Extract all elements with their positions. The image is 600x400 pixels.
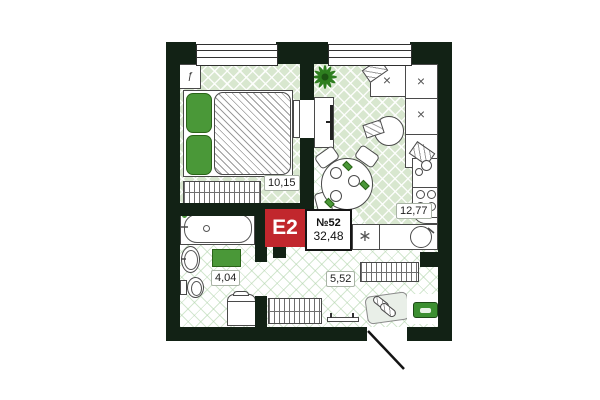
wall-bedroom-living [300,64,314,100]
washer-lid-line [228,301,255,302]
wall-right [438,42,452,341]
counter-divider [413,187,437,188]
radiator-icon: ƒ [187,71,193,82]
tv-mount [326,121,330,123]
room-area-label-hallway: 5,52 [326,271,355,287]
wall-bottom-left [166,327,367,341]
cushion-mark-icon: × [383,73,391,87]
wall-top-mid [276,42,328,64]
bedroom-door-leaf [293,100,300,138]
wall-radiator: ƒ [179,64,201,89]
stove-burner [427,190,436,199]
wardrobe-bedroom [183,181,261,204]
bathtub [180,211,255,245]
floor-plan-canvas: ƒ × × × × [0,0,600,400]
sofa-cushion-divider [406,98,437,99]
unit-type-badge: E2 [265,209,305,247]
kitchen-sink-round [410,226,432,248]
stove-burner [416,190,425,199]
cushion-mark-icon: × [417,107,425,121]
washer-lid-bump [233,291,249,296]
room-area-label-bathroom: 4,04 [211,270,240,286]
window [196,44,278,66]
bench-leg [330,313,332,318]
bath-mat [212,249,241,267]
room-area-label-bedroom: 10,15 [264,175,300,191]
doormat-bag [413,302,438,318]
unit-total-area: 32,48 [313,230,343,243]
plate [330,167,342,179]
plate [348,175,360,187]
wall-left [166,42,180,341]
sink-basin [184,250,198,270]
doormat-slot [420,308,431,313]
room-area-label-kitchen-living: 12,77 [396,203,432,219]
window [328,44,412,66]
tv [330,105,333,140]
hob-mark-icon: ∗ [358,230,371,244]
bed-pillow [186,93,212,133]
sofa-cushion-divider [406,134,437,135]
wardrobe-hall-top [360,262,419,282]
bench-leg [352,313,354,318]
bathtub-basin [184,214,252,243]
wall-bathroom [255,296,267,327]
unit-info-box: №52 32,48 [305,209,352,251]
wall-bottom-right [407,327,452,341]
bathroom-sink [181,246,200,273]
toilet-bowl-inner [191,281,202,296]
wall-kitchen-stub [420,252,438,267]
bed-pillow [186,135,212,175]
washing-machine [227,294,256,326]
bedroom-door-opening [300,100,314,138]
bathtub-drain [203,225,210,232]
counter-divider [379,225,380,249]
entrance-door-leaf [368,331,404,369]
bed-blanket [214,92,291,175]
toilet-tank [180,280,187,295]
cushion-mark-icon: × [417,74,425,88]
kitchen-faucet-icon [415,168,423,176]
wardrobe-hall-bottom [268,298,322,324]
toilet-bowl [187,277,204,298]
